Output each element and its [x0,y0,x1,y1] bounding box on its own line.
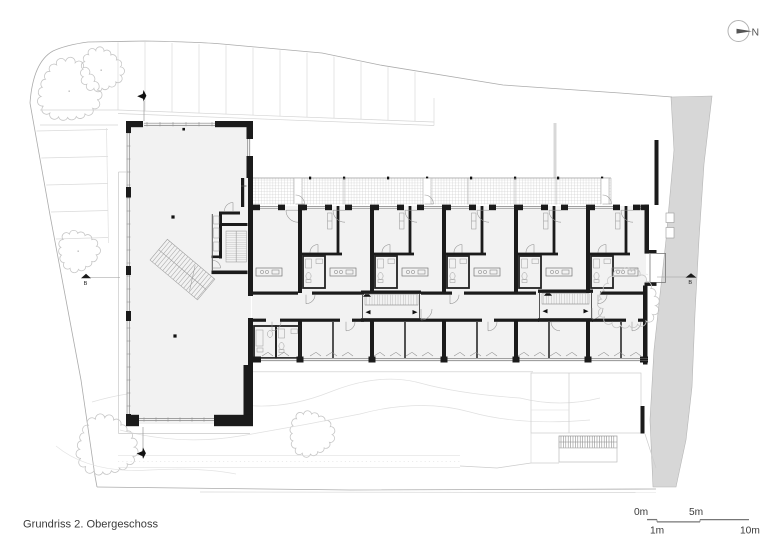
svg-text:5m: 5m [689,507,703,518]
svg-text:10m: 10m [740,526,760,537]
svg-text:0m: 0m [634,507,648,518]
svg-text:B: B [84,281,88,287]
svg-text:N: N [752,27,760,39]
svg-text:B: B [688,280,692,286]
svg-text:Grundriss 2. Obergeschoss: Grundriss 2. Obergeschoss [23,519,158,531]
svg-text:1m: 1m [650,526,664,537]
